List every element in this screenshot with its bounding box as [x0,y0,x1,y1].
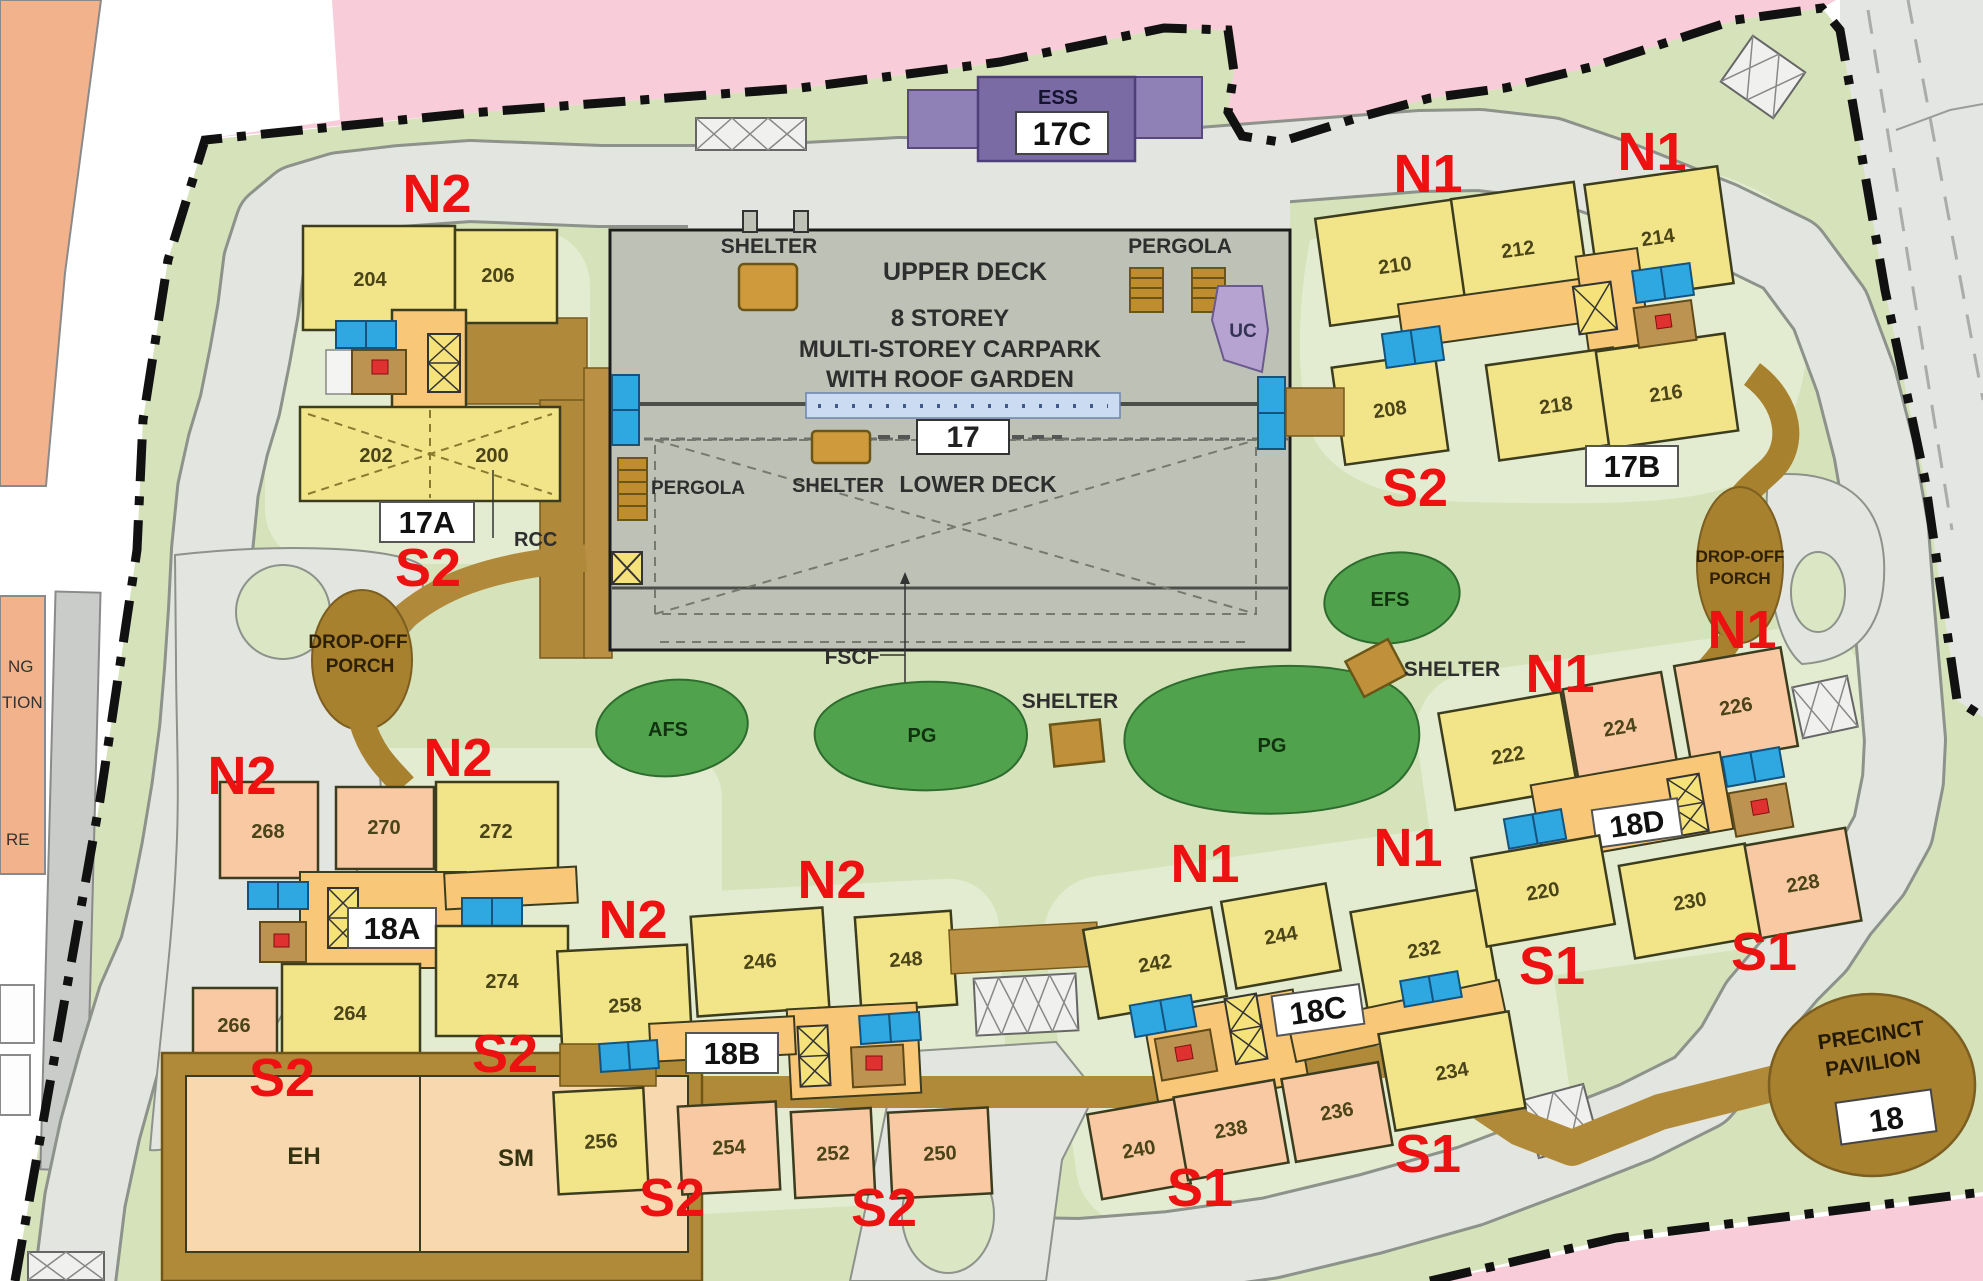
svg-text:DROP-OFF: DROP-OFF [1696,547,1785,566]
svg-text:17C: 17C [1033,116,1092,152]
svg-text:SM: SM [498,1145,534,1172]
svg-text:S2: S2 [249,1048,315,1108]
svg-text:S1: S1 [1519,936,1585,996]
svg-text:PG: PG [908,725,937,747]
svg-text:S2: S2 [639,1168,705,1228]
svg-text:208: 208 [1372,397,1408,423]
svg-text:N1: N1 [1525,644,1594,704]
svg-text:18A: 18A [364,911,421,946]
svg-text:218: 218 [1538,393,1574,419]
svg-text:256: 256 [584,1130,618,1154]
svg-text:SHELTER: SHELTER [1022,690,1118,713]
svg-text:DROP-OFF: DROP-OFF [308,632,407,653]
svg-text:17B: 17B [1604,449,1661,484]
svg-text:258: 258 [608,994,642,1018]
svg-text:212: 212 [1500,237,1536,263]
svg-text:RE: RE [6,830,30,849]
svg-text:S2: S2 [472,1024,538,1084]
svg-text:N2: N2 [423,728,492,788]
svg-text:SHELTER: SHELTER [792,475,884,497]
svg-text:N2: N2 [207,746,276,806]
svg-text:UPPER DECK: UPPER DECK [883,258,1047,286]
svg-text:252: 252 [816,1142,850,1166]
svg-text:S2: S2 [395,538,461,598]
svg-text:SHELTER: SHELTER [1404,658,1500,681]
svg-text:FSCF: FSCF [825,646,880,669]
svg-text:N2: N2 [402,164,471,224]
svg-text:N1: N1 [1373,818,1442,878]
svg-text:PERGOLA: PERGOLA [1128,235,1232,258]
svg-text:WITH ROOF GARDEN: WITH ROOF GARDEN [826,366,1074,393]
svg-text:206: 206 [481,265,514,287]
svg-text:MULTI-STOREY CARPARK: MULTI-STOREY CARPARK [799,336,1102,363]
svg-text:18B: 18B [704,1036,761,1071]
svg-text:200: 200 [475,445,508,467]
svg-text:250: 250 [923,1142,957,1166]
svg-text:8 STOREY: 8 STOREY [891,305,1009,332]
svg-text:268: 268 [251,821,284,843]
svg-text:PERGOLA: PERGOLA [651,478,745,499]
svg-text:270: 270 [367,817,400,839]
svg-text:272: 272 [479,821,512,843]
svg-text:N2: N2 [797,850,866,910]
svg-text:210: 210 [1377,253,1413,279]
svg-text:AFS: AFS [648,719,688,741]
svg-text:274: 274 [485,971,519,993]
svg-text:ESS: ESS [1038,87,1078,109]
svg-text:SHELTER: SHELTER [721,235,817,258]
svg-text:S1: S1 [1731,922,1797,982]
svg-text:S1: S1 [1395,1124,1461,1184]
svg-text:S1: S1 [1167,1158,1233,1218]
svg-text:N1: N1 [1617,122,1686,182]
svg-text:254: 254 [712,1136,747,1160]
svg-text:PG: PG [1258,735,1287,757]
svg-text:264: 264 [333,1003,367,1025]
svg-text:204: 204 [353,269,387,291]
svg-text:17: 17 [946,421,979,454]
svg-text:S2: S2 [851,1178,917,1238]
svg-text:202: 202 [359,445,392,467]
svg-text:RCC: RCC [514,529,557,551]
svg-text:EFS: EFS [1371,589,1410,611]
svg-text:N1: N1 [1170,834,1239,894]
svg-text:PORCH: PORCH [1709,569,1770,588]
svg-text:216: 216 [1648,381,1684,407]
svg-text:PORCH: PORCH [326,656,395,677]
svg-text:N1: N1 [1393,144,1462,204]
svg-text:UC: UC [1229,321,1257,342]
svg-text:N2: N2 [598,890,667,950]
svg-text:248: 248 [889,948,924,972]
svg-text:TION: TION [2,693,43,712]
svg-text:246: 246 [743,950,778,974]
svg-text:LOWER DECK: LOWER DECK [899,471,1057,497]
svg-text:18: 18 [1867,1100,1906,1139]
svg-text:17A: 17A [399,505,456,540]
svg-text:266: 266 [217,1015,250,1037]
svg-text:N1: N1 [1707,600,1776,660]
svg-text:S2: S2 [1382,458,1448,518]
svg-text:NG: NG [8,657,34,676]
svg-text:EH: EH [287,1143,320,1170]
